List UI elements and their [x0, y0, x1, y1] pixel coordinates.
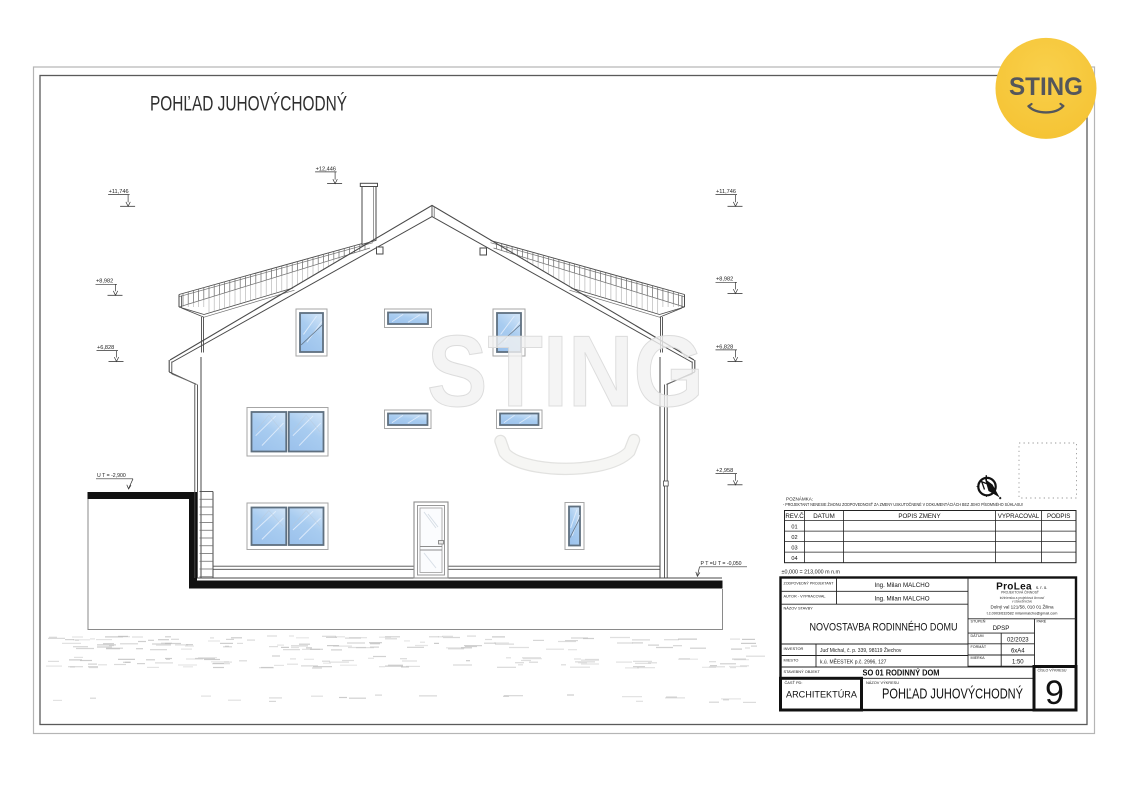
svg-text:+11,746: +11,746	[716, 189, 736, 195]
svg-text:STAVEBNÝ OBJEKT: STAVEBNÝ OBJEKT	[784, 669, 821, 674]
svg-text:s. r. o.: s. r. o.	[1036, 585, 1047, 590]
svg-text:k.ú. MĚESTEK p.č. 2996, 127: k.ú. MĚESTEK p.č. 2996, 127	[820, 658, 887, 666]
svg-text:Dolný val 121/58, 010 01 Žilin: Dolný val 121/58, 010 01 Žilina	[990, 603, 1054, 610]
svg-text:ARCHITEKTÚRA: ARCHITEKTÚRA	[786, 690, 858, 701]
svg-text:VYPRACOVAL: VYPRACOVAL	[998, 513, 1040, 520]
svg-text:MIESTO: MIESTO	[784, 658, 799, 663]
svg-text:NÁZOV VÝKRESU: NÁZOV VÝKRESU	[866, 680, 899, 685]
svg-text:AUTOR - VYPRACOVAL: AUTOR - VYPRACOVAL	[784, 594, 827, 599]
svg-text:POHĽAD JUHOVÝCHODNÝ: POHĽAD JUHOVÝCHODNÝ	[150, 91, 347, 116]
svg-text:02/2023: 02/2023	[1007, 638, 1029, 644]
svg-text:- PROJEKTANT NENESIE ŽIADNU ZO: - PROJEKTANT NENESIE ŽIADNU ZODPOVEDNOSŤ…	[783, 502, 1023, 507]
svg-text:9: 9	[1045, 674, 1064, 712]
svg-text:POZNÁMKA:: POZNÁMKA:	[786, 496, 813, 502]
svg-text:+6,828: +6,828	[97, 345, 114, 351]
svg-text:03: 03	[791, 546, 797, 552]
svg-text:1:50: 1:50	[1012, 660, 1024, 666]
svg-text:PARÉ: PARÉ	[1037, 619, 1047, 624]
svg-text:+2,958: +2,958	[716, 468, 733, 474]
svg-text:ČASŤ PD:: ČASŤ PD:	[785, 680, 803, 685]
svg-text:04: 04	[791, 556, 797, 562]
svg-text:+11,746: +11,746	[109, 189, 129, 195]
svg-text:MIERKA: MIERKA	[971, 656, 986, 660]
svg-text:P T =U T = -0,050: P T =U T = -0,050	[701, 561, 742, 567]
svg-text:Ing. Milan MALCHO: Ing. Milan MALCHO	[874, 595, 929, 602]
svg-text:Juď Michal, č. p. 339, 98119 Ž: Juď Michal, č. p. 339, 98119 Žiechov	[820, 646, 902, 654]
svg-text:NOVOSTAVBA RODINNÉHO DOMU: NOVOSTAVBA RODINNÉHO DOMU	[810, 621, 958, 634]
svg-text:POHĽAD JUHOVÝCHODNÝ: POHĽAD JUHOVÝCHODNÝ	[882, 686, 1023, 703]
svg-text:t.č.0903/632682 milanmalcho@: t.č.0903/632682 milanmalcho@gmail.com	[987, 611, 1058, 615]
svg-text:+6,828: +6,828	[716, 344, 733, 350]
svg-text:STUPEŇ: STUPEŇ	[971, 619, 986, 624]
svg-text:v stavebníctve: v stavebníctve	[1012, 599, 1033, 603]
svg-text:DATUM: DATUM	[813, 513, 835, 520]
svg-text:INVESTOR: INVESTOR	[784, 646, 804, 651]
svg-text:DÁTUM: DÁTUM	[971, 634, 984, 638]
svg-text:+8,982: +8,982	[96, 279, 113, 285]
svg-text:Ing. Milan MALCHO: Ing. Milan MALCHO	[874, 582, 929, 589]
svg-text:6xA4: 6xA4	[1011, 649, 1025, 655]
svg-text:DPSP: DPSP	[993, 625, 1010, 632]
svg-text:U T = -2,900: U T = -2,900	[97, 473, 126, 479]
svg-text:PODPIS: PODPIS	[1047, 513, 1070, 520]
svg-text:+12,446: +12,446	[316, 166, 336, 172]
svg-text:02: 02	[791, 535, 797, 541]
svg-text:+8,982: +8,982	[716, 277, 733, 283]
svg-text:NÁZOV STAVBY: NÁZOV STAVBY	[784, 606, 814, 611]
svg-text:SO 01 RODINNÝ DOM: SO 01 RODINNÝ DOM	[863, 669, 940, 678]
svg-text:ČÍSLO VÝKRESU: ČÍSLO VÝKRESU	[1038, 667, 1067, 672]
svg-text:REV.Č: REV.Č	[785, 513, 804, 520]
svg-text:STING: STING	[1009, 73, 1083, 101]
svg-text:POPIS ZMENY: POPIS ZMENY	[898, 513, 940, 520]
svg-text:STING: STING	[427, 316, 704, 428]
svg-text:PROJEKTOVÁ ČINNOSŤ: PROJEKTOVÁ ČINNOSŤ	[1001, 589, 1039, 594]
svg-text:FORMÁT: FORMÁT	[971, 645, 987, 649]
svg-text:01: 01	[791, 525, 797, 531]
svg-text:ZODPOVEDNÝ PROJEKTANT: ZODPOVEDNÝ PROJEKTANT	[784, 581, 835, 586]
svg-text:±0,000 = 213,000 m n.m: ±0,000 = 213,000 m n.m	[782, 570, 841, 576]
